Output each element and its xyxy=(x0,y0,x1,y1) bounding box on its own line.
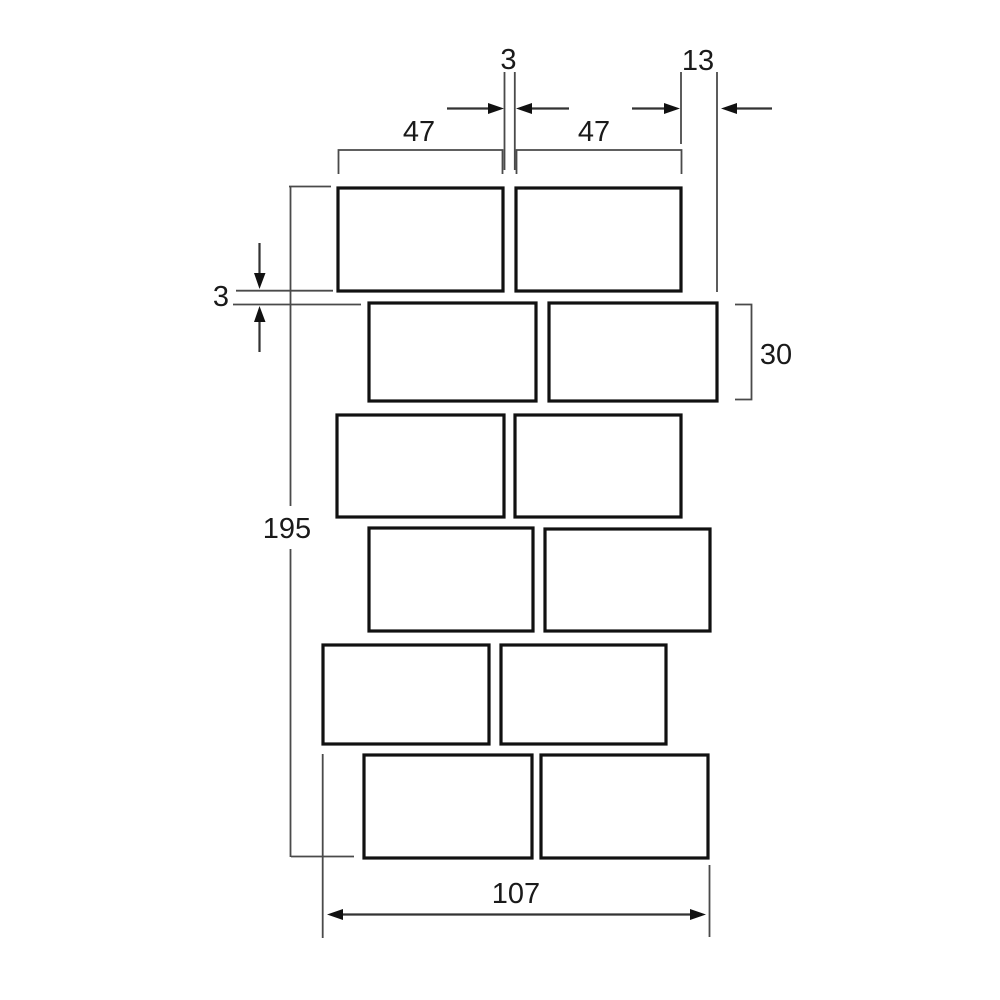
dim-label-total-width: 107 xyxy=(492,878,540,910)
brick-row5-left xyxy=(323,645,489,744)
brick-row1-left xyxy=(338,188,503,291)
drawing-canvas: 3 13 47 47 3 195 30 xyxy=(0,0,1000,1000)
dim-label-total-height: 195 xyxy=(263,513,311,545)
dim-brick-height: 30 xyxy=(735,305,792,400)
arrowhead-down-icon xyxy=(254,273,266,289)
brick-row4-left xyxy=(369,528,533,631)
brick-row1-right xyxy=(516,188,681,291)
dim-label-width-left: 47 xyxy=(403,116,435,148)
height-bracket xyxy=(735,305,752,400)
brick-row2-right xyxy=(549,303,717,401)
dim-label-brick-height: 30 xyxy=(760,339,792,371)
arrowhead-right-icon xyxy=(690,909,706,920)
arrowhead-left-icon xyxy=(327,909,343,920)
brick-row2-left xyxy=(369,303,536,401)
dim-brick-widths: 47 47 xyxy=(339,116,682,174)
width-bracket-left xyxy=(339,150,503,174)
bricks xyxy=(323,188,717,858)
brick-row6-right xyxy=(541,755,708,858)
dim-label-head-joint: 3 xyxy=(500,44,516,76)
arrowhead-up-icon xyxy=(254,306,266,322)
brick-row5-right xyxy=(501,645,666,744)
brick-row6-left xyxy=(364,755,532,858)
brick-row4-right xyxy=(545,529,710,631)
arrowhead-left-icon xyxy=(721,103,737,114)
arrowhead-right-icon xyxy=(664,103,680,114)
brick-dimension-diagram: 3 13 47 47 3 195 30 xyxy=(0,0,1000,1000)
dim-label-bed-joint: 3 xyxy=(213,281,229,313)
brick-row3-right xyxy=(515,415,681,517)
arrowhead-left-icon xyxy=(516,103,532,114)
dim-label-width-right: 47 xyxy=(578,116,610,148)
arrowhead-right-icon xyxy=(488,103,504,114)
dim-head-joint: 3 xyxy=(447,44,569,170)
dim-label-row-offset: 13 xyxy=(682,45,714,77)
brick-row3-left xyxy=(337,415,504,517)
width-bracket-right xyxy=(517,150,682,174)
